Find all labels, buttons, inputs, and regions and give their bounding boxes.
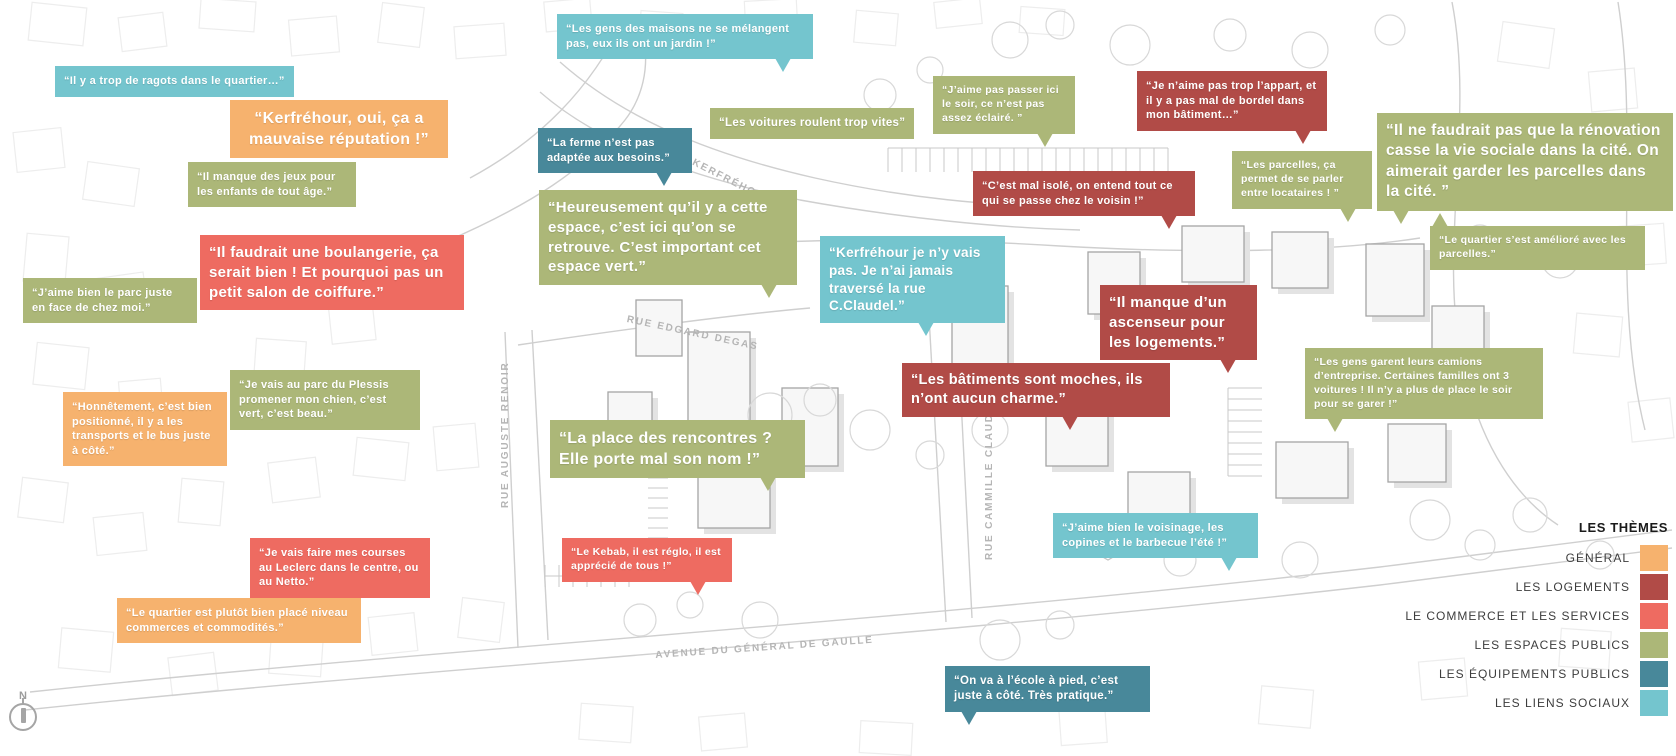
legend-item-logements: LES LOGEMENTS [1405,574,1668,600]
legend-label: LES LOGEMENTS [1516,580,1630,594]
quote-bubble-parc-en-face: “J’aime bien le parc juste en face de ch… [23,278,197,323]
quote-bubble-bien-positionne: “Honnêtement, c’est bien positionné, il … [63,392,227,466]
quote-bubble-mal-isole: “C’est mal isolé, on entend tout ce qui … [973,171,1195,216]
street-label-rue-cammille-claudel: RUE CAMMILLE CLAUDEL [984,397,995,560]
quote-text: “Les gens garent leurs camions d’entrepr… [1314,356,1512,410]
quote-text: “On va à l’école à pied, c’est juste à c… [954,675,1118,702]
quote-bubble-rue-claudel: “Kerfréhour je n’y vais pas. Je n’ai jam… [820,236,1005,323]
bubble-tail [961,711,977,725]
legend: LES THÈMES GÉNÉRALLES LOGEMENTSLE COMMER… [1405,520,1668,719]
bubble-tail [918,322,934,336]
quote-bubble-ecole-a-pied: “On va à l’école à pied, c’est juste à c… [945,666,1150,712]
quote-bubble-parcelles-parler: “Les parcelles, ça permet de se parler e… [1232,151,1372,209]
bubble-tail [1062,416,1078,430]
quote-text: “Honnêtement, c’est bien positionné, il … [72,401,212,457]
bubble-tail [1295,130,1311,144]
quote-bubble-place-rencontres: “La place des rencontres ? Elle porte ma… [550,420,805,478]
quote-text: “Il manque d’un ascenseur pour les logem… [1109,294,1227,351]
quote-bubble-quartier-ameliore: “Le quartier s’est amélioré avec les par… [1430,226,1645,270]
quote-text: “J’aime bien le voisinage, les copines e… [1062,522,1227,549]
compass: N [8,690,38,731]
quote-text: “Il ne faudrait pas que la rénovation ca… [1386,122,1661,200]
quote-bubble-gens-des-maisons: “Les gens des maisons ne se mélangent pa… [557,14,813,59]
quote-bubble-kebab: “Le Kebab, il est réglo, il est apprécié… [562,538,732,582]
quote-text: “J’aime pas passer ici le soir, ce n’est… [942,84,1059,124]
compass-needle [21,708,26,723]
quote-bubble-jeux-enfants: “Il manque des jeux pour les enfants de … [188,162,356,207]
legend-swatch-logements [1640,574,1668,600]
quote-bubble-ascenseur: “Il manque d’un ascenseur pour les logem… [1100,285,1257,360]
quote-bubble-batiments-moches: “Les bâtiments sont moches, ils n’ont au… [902,363,1170,417]
legend-item-commerce: LE COMMERCE ET LES SERVICES [1405,603,1668,629]
legend-label: LES ÉQUIPEMENTS PUBLICS [1439,667,1630,681]
quote-text: “Il faudrait une boulangerie, ça serait … [209,244,444,301]
legend-swatch-general [1640,545,1668,571]
quote-text: “Les gens des maisons ne se mélangent pa… [566,23,789,50]
legend-label: LE COMMERCE ET LES SERVICES [1405,609,1630,623]
quote-text: “Kerfréhour je n’y vais pas. Je n’ai jam… [829,245,981,313]
quote-text: “C’est mal isolé, on entend tout ce qui … [982,180,1173,207]
bubble-tail [1037,133,1053,147]
legend-swatch-liens [1640,690,1668,716]
bubble-tail [1220,359,1236,373]
quote-bubble-courses-leclerc: “Je vais faire mes courses au Leclerc da… [250,538,430,598]
legend-swatch-equipements [1640,661,1668,687]
quote-text: “Heureusement qu’il y a cette espace, c’… [548,199,768,275]
bubble-tail [656,172,672,186]
bubble-tail [775,58,791,72]
legend-item-liens: LES LIENS SOCIAUX [1405,690,1668,716]
quote-text: “Il y a trop de ragots dans le quartier…… [64,75,285,87]
legend-item-espaces: LES ESPACES PUBLICS [1405,632,1668,658]
quote-bubble-boulangerie: “Il faudrait une boulangerie, ça serait … [200,235,464,310]
legend-title: LES THÈMES [1405,520,1668,535]
quote-text: “Le quartier s’est amélioré avec les par… [1439,234,1626,260]
quote-bubble-mauvaise-reputation: “Kerfréhour, oui, ça a mauvaise réputati… [230,100,448,158]
quote-bubble-renovation: “Il ne faudrait pas que la rénovation ca… [1377,113,1673,211]
quote-bubble-ragots: “Il y a trop de ragots dans le quartier…… [55,66,294,97]
bubble-tail [1221,557,1237,571]
legend-label: LES LIENS SOCIAUX [1495,696,1630,710]
quote-text: “La ferme n’est pas adaptée aux besoins.… [547,137,670,164]
legend-items: GÉNÉRALLES LOGEMENTSLE COMMERCE ET LES S… [1405,545,1668,716]
legend-item-equipements: LES ÉQUIPEMENTS PUBLICS [1405,661,1668,687]
map-canvas: RUE DE KERFRÉHOURRUE EDGARD DEGASRUE AUG… [0,0,1676,756]
quote-bubble-camions: “Les gens garent leurs camions d’entrepr… [1305,348,1543,419]
bubble-tail [690,581,706,595]
bubble-tail [761,284,777,298]
bubble-tail [1327,418,1343,432]
quote-text: “J’aime bien le parc juste en face de ch… [32,287,172,314]
bubble-tail [1340,208,1356,222]
bubble-tail [760,477,776,491]
quote-text: “Je vais faire mes courses au Leclerc da… [259,547,419,588]
quote-text: “Je vais au parc du Plessis promener mon… [239,379,389,420]
quote-text: “Les parcelles, ça permet de se parler e… [1241,159,1344,199]
quote-bubble-espace-vert: “Heureusement qu’il y a cette espace, c’… [539,190,797,285]
quote-bubble-appart-bordel: “Je n’aime pas trop l’appart, et il y a … [1137,71,1327,131]
quote-bubble-ferme: “La ferme n’est pas adaptée aux besoins.… [538,128,692,173]
legend-swatch-espaces [1640,632,1668,658]
bubble-tail [1161,215,1177,229]
quote-text: “Il manque des jeux pour les enfants de … [197,171,336,198]
quote-bubble-parc-du-plessis: “Je vais au parc du Plessis promener mon… [230,370,420,430]
quote-text: “Le Kebab, il est réglo, il est apprécié… [571,546,721,572]
quote-bubble-bien-place: “Le quartier est plutôt bien placé nivea… [117,598,361,643]
quote-text: “Les bâtiments sont moches, ils n’ont au… [911,372,1143,407]
quote-text: “Les voitures roulent trop vites” [719,117,905,129]
compass-icon [9,703,37,731]
legend-item-general: GÉNÉRAL [1405,545,1668,571]
quote-text: “Je n’aime pas trop l’appart, et il y a … [1146,80,1316,121]
bubble-tail [1432,213,1448,227]
quote-bubble-voitures-vites: “Les voitures roulent trop vites” [710,108,914,139]
legend-label: GÉNÉRAL [1566,551,1630,565]
legend-label: LES ESPACES PUBLICS [1475,638,1631,652]
quote-bubble-pas-eclaire: “J’aime pas passer ici le soir, ce n’est… [933,76,1075,134]
street-label-rue-auguste-renoir: RUE AUGUSTE RENOIR [500,362,511,508]
quote-bubble-voisinage-barbecue: “J’aime bien le voisinage, les copines e… [1053,513,1258,558]
legend-swatch-commerce [1640,603,1668,629]
quote-text: “Le quartier est plutôt bien placé nivea… [126,607,348,634]
bubble-tail [1393,210,1409,224]
quote-text: “La place des rencontres ? Elle porte ma… [559,430,772,468]
quote-text: “Kerfréhour, oui, ça a mauvaise réputati… [249,110,429,148]
